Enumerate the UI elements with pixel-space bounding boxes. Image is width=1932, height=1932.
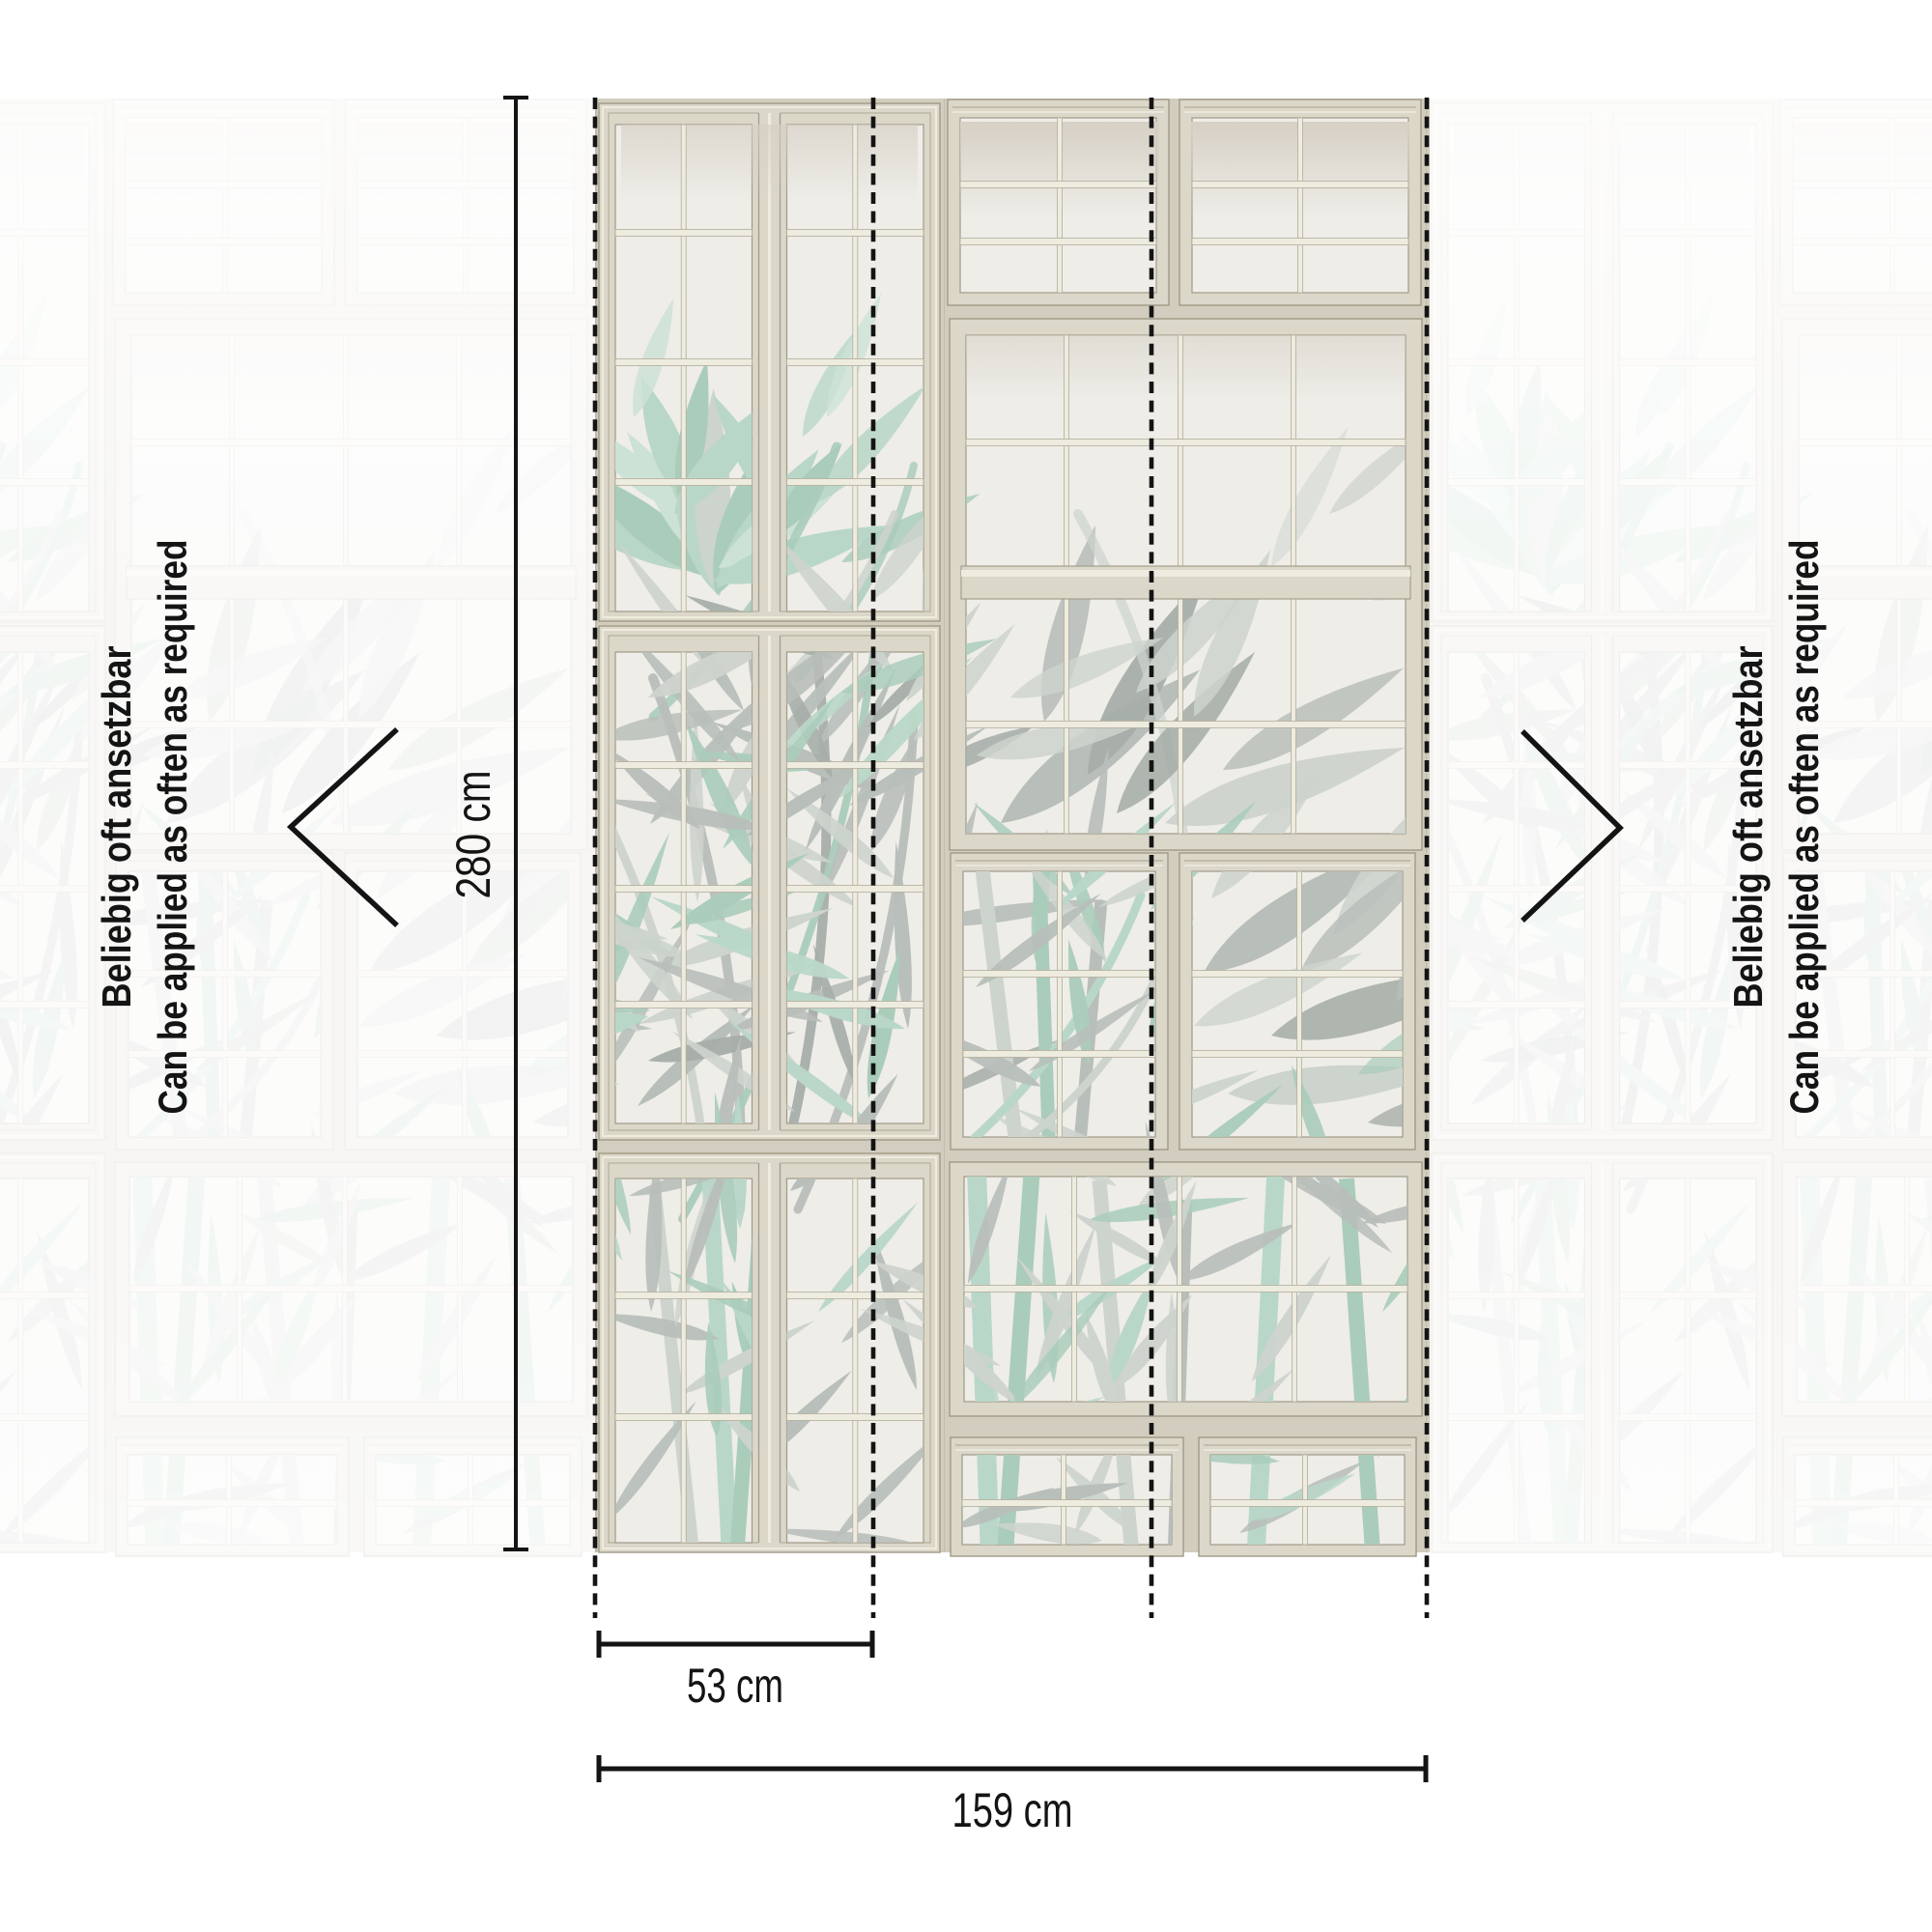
svg-text:Beliebig oft ansetzbar: Beliebig oft ansetzbar <box>1725 646 1771 1009</box>
svg-text:280 cm: 280 cm <box>446 771 500 899</box>
svg-text:53 cm: 53 cm <box>687 1659 783 1713</box>
svg-text:Can be applied as often as req: Can be applied as often as required <box>150 540 195 1115</box>
svg-text:Can be applied as often as req: Can be applied as often as required <box>1781 540 1827 1115</box>
svg-text:Beliebig oft ansetzbar: Beliebig oft ansetzbar <box>94 646 139 1009</box>
svg-text:159 cm: 159 cm <box>952 1783 1073 1837</box>
